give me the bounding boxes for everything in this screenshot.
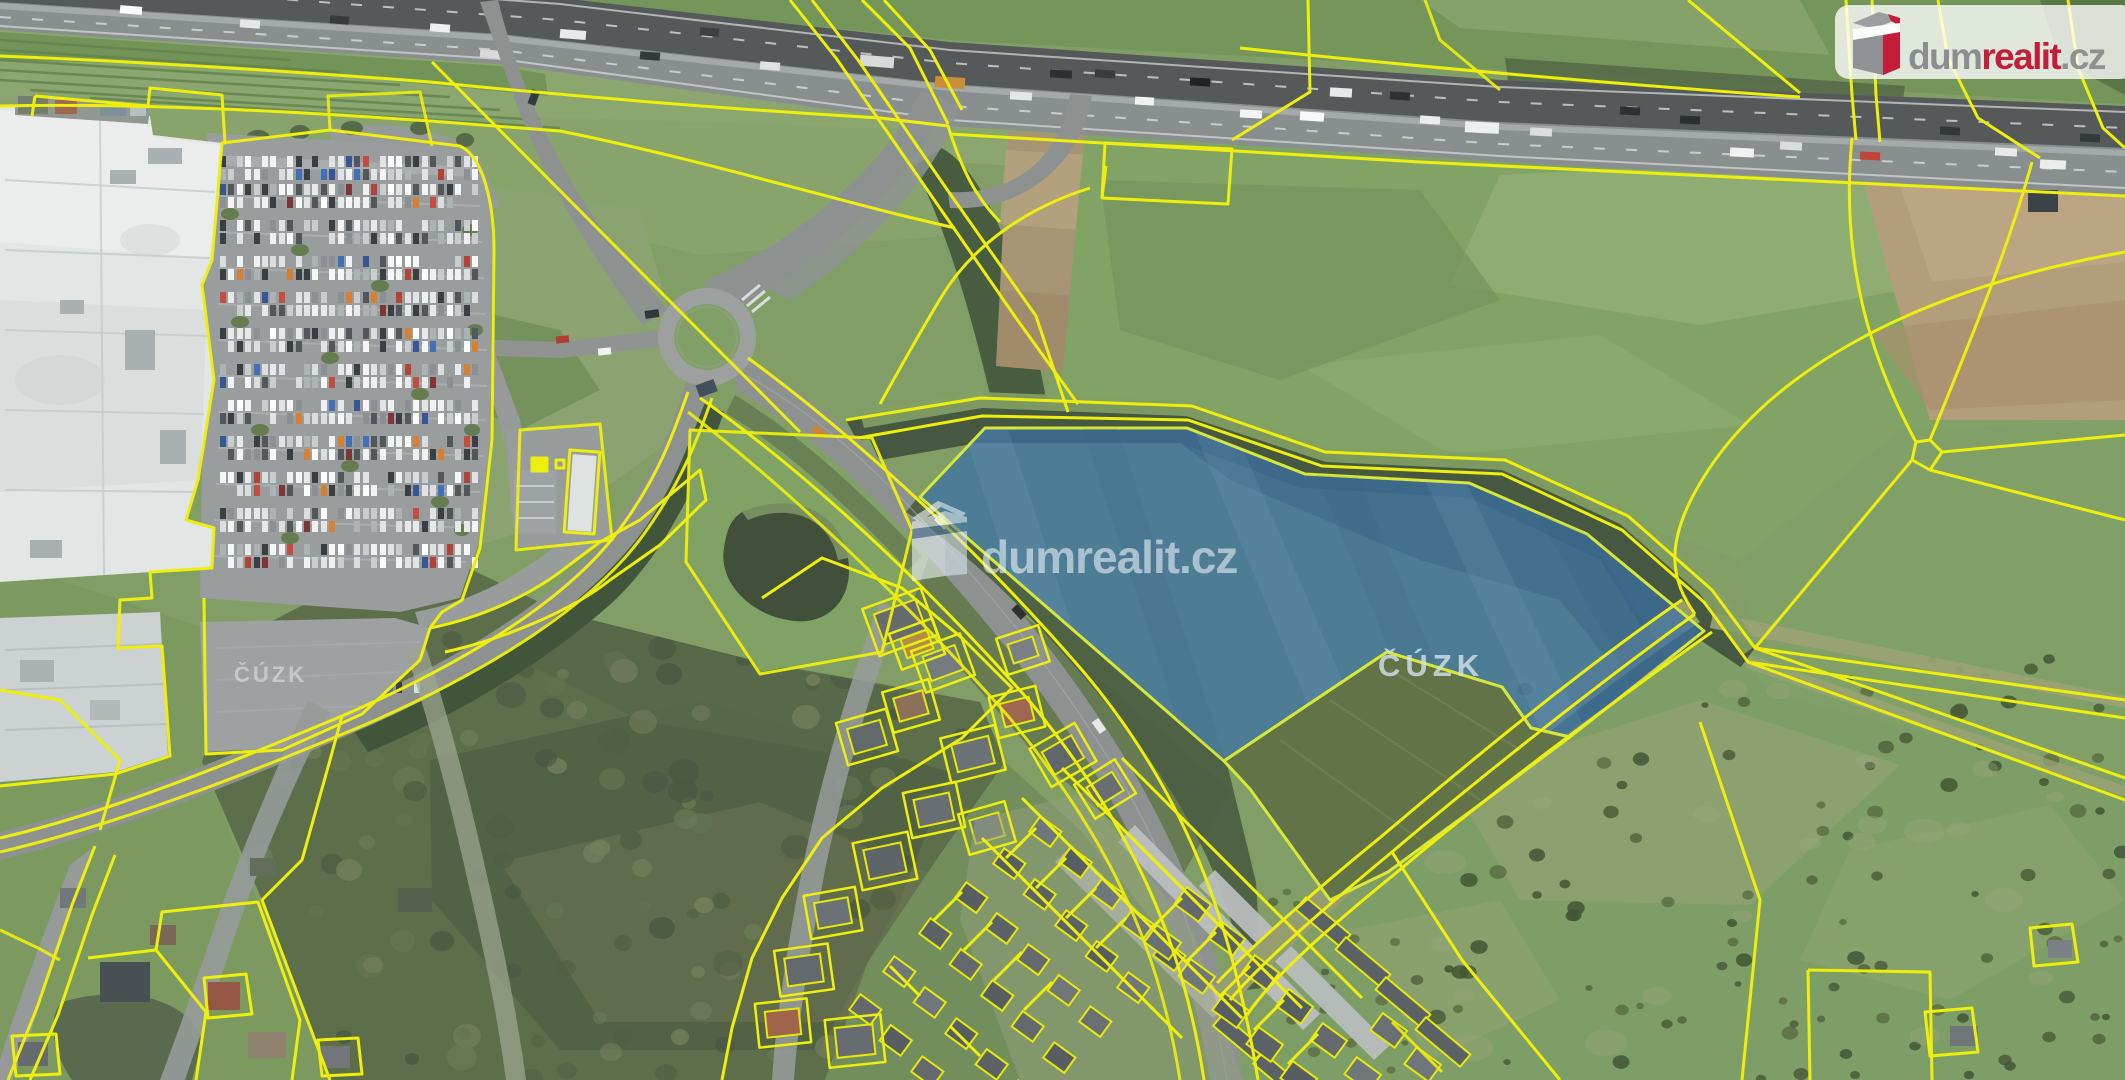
svg-text:dumrealit.cz: dumrealit.cz: [1908, 36, 2106, 77]
svg-text:dumrealit.cz: dumrealit.cz: [981, 531, 1237, 583]
svg-text:ČÚZK: ČÚZK: [1378, 647, 1484, 683]
svg-text:ČÚZK: ČÚZK: [234, 662, 307, 687]
